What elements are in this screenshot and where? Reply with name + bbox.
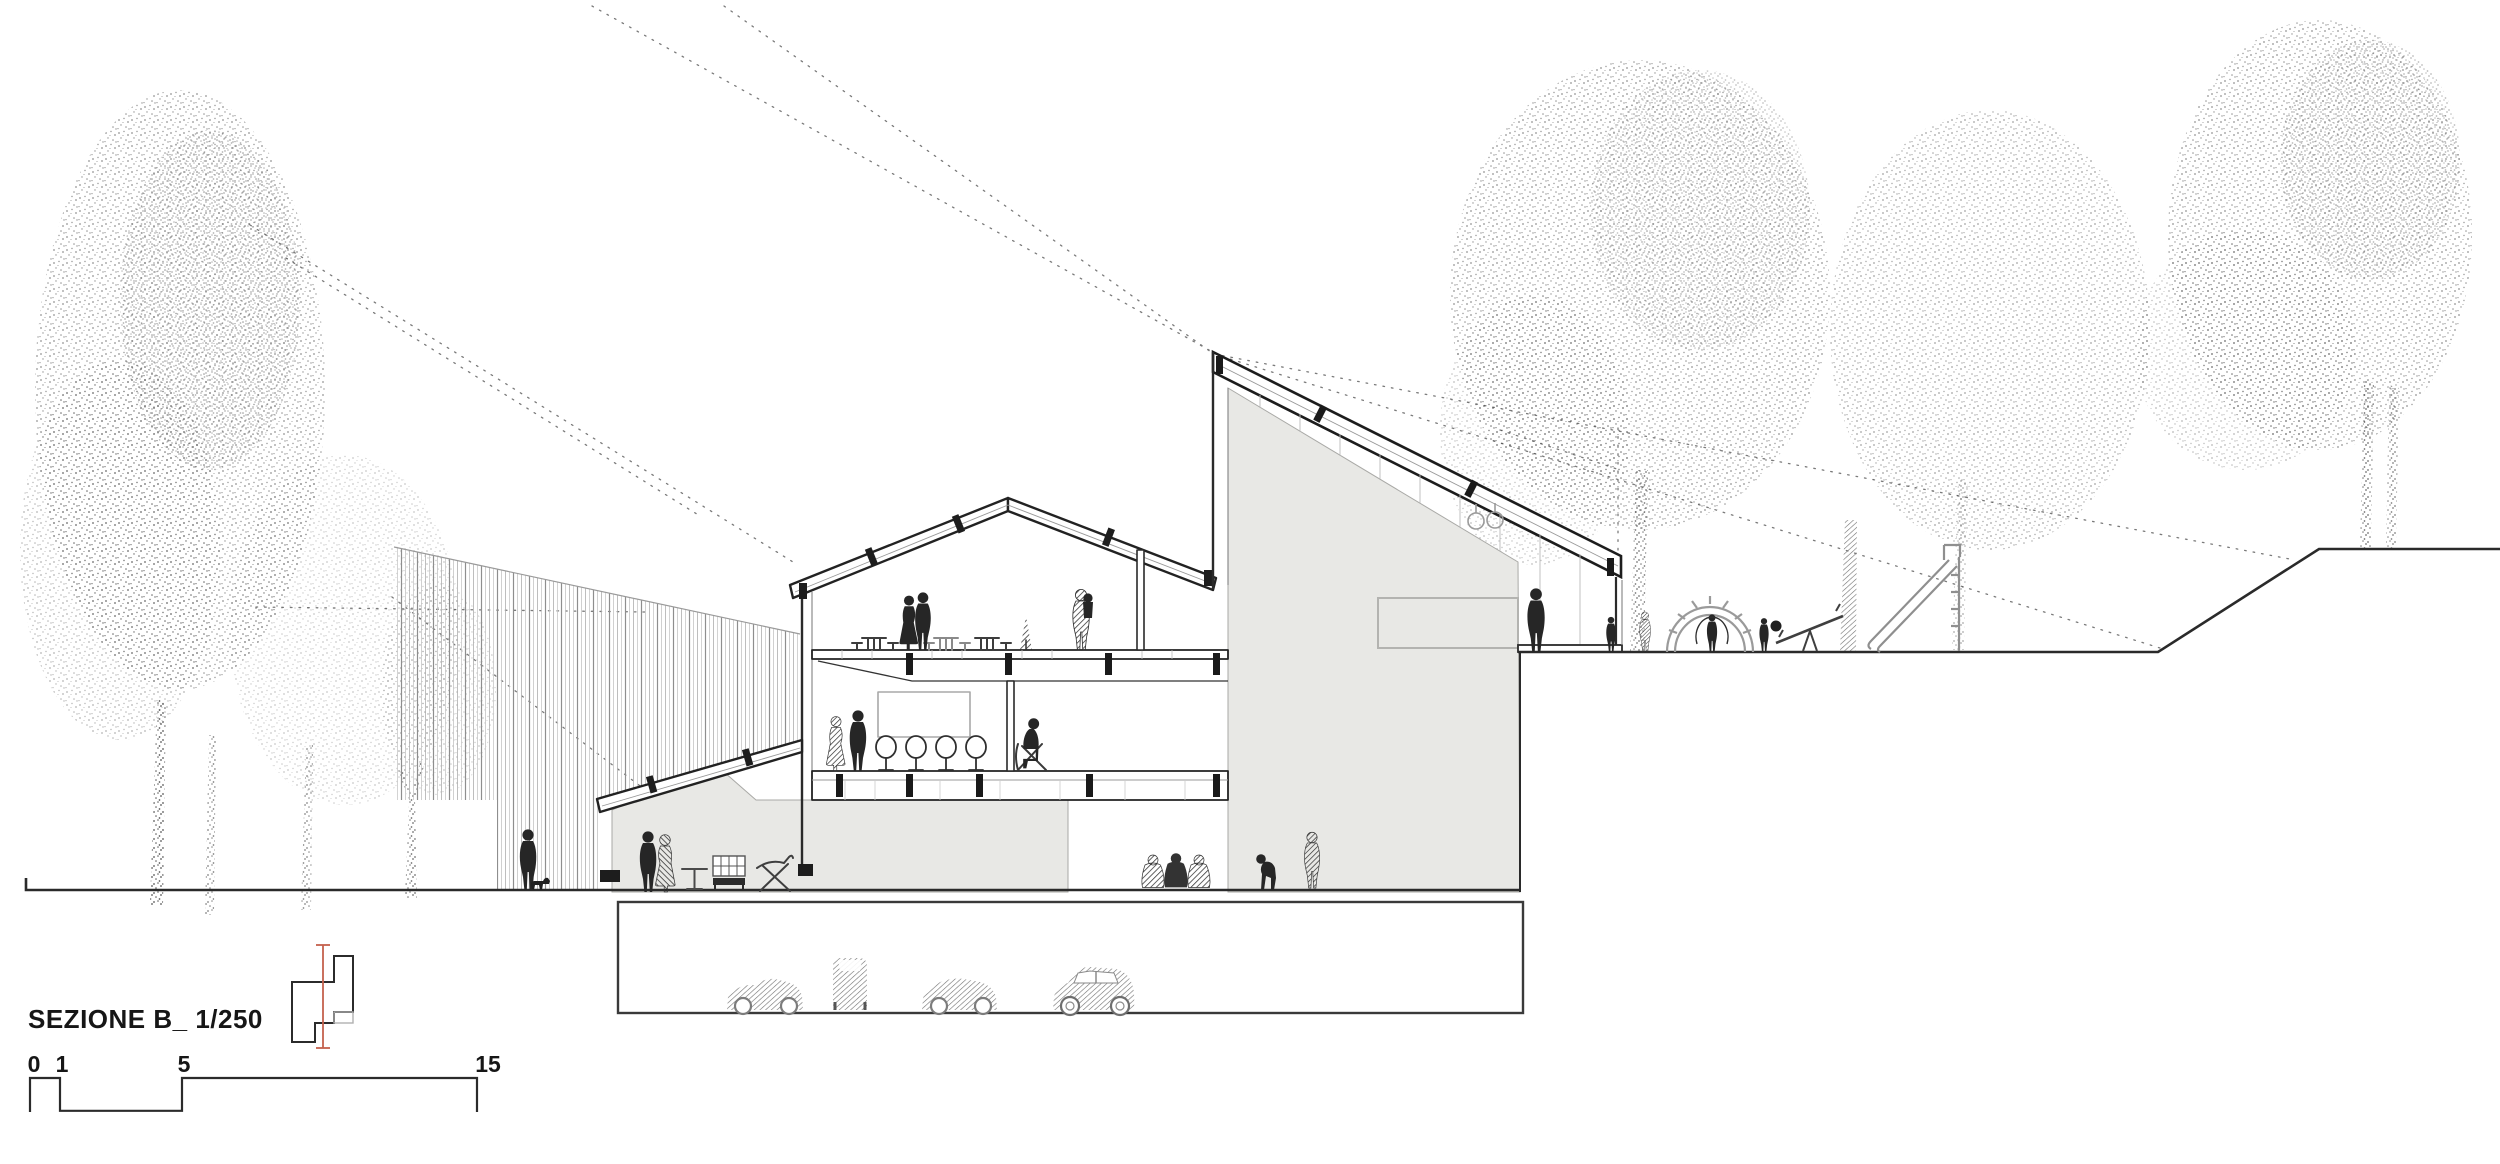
cafe-set — [975, 638, 1011, 650]
section-drawing: SEZIONE B_ 1/250 0 1 5 15 — [0, 0, 2500, 1164]
scale-label-5: 5 — [178, 1051, 191, 1077]
person-seated — [1023, 718, 1039, 768]
swivel-chairs — [876, 736, 986, 770]
child-jumping-rope — [1696, 614, 1728, 652]
scale-label-0: 0 — [28, 1051, 41, 1077]
slide — [1869, 545, 1961, 652]
person-seated — [1164, 853, 1187, 887]
upper-floor-slab — [812, 650, 1228, 681]
section-line-marker — [316, 945, 330, 1048]
cafe-set — [924, 638, 970, 650]
tree-canopy — [1830, 110, 2150, 550]
tree-trunk — [150, 700, 166, 905]
person-carrying-child — [1073, 589, 1093, 650]
potted-plant — [1020, 616, 1032, 650]
drawing-title: SEZIONE B_ 1/250 — [28, 1004, 263, 1034]
seesaw — [1776, 604, 1843, 651]
tree-trunk — [205, 735, 216, 915]
person — [899, 596, 918, 650]
scale-label-15: 15 — [475, 1051, 501, 1077]
mid-partition-wall — [1007, 681, 1014, 771]
terrace-shelf-unit — [713, 856, 745, 890]
child-with-ball — [1759, 618, 1781, 652]
titleblock: SEZIONE B_ 1/250 0 1 5 15 — [28, 945, 501, 1112]
key-plan — [292, 945, 353, 1048]
gable-roof-left-slope — [790, 498, 1008, 598]
underground-parking — [618, 902, 1523, 1015]
gable-roof-right-slope — [1008, 498, 1216, 590]
upper-partition-wall — [1137, 550, 1144, 650]
ground-line-playground — [1518, 549, 2500, 652]
section-drawing-sheet: SEZIONE B_ 1/250 0 1 5 15 — [0, 0, 2500, 1164]
lower-floor-slab — [812, 771, 1228, 800]
tree-trunk — [1840, 520, 1857, 652]
scale-bar: 0 1 5 15 — [28, 1051, 501, 1112]
cafe-set — [852, 638, 898, 650]
person — [1527, 588, 1544, 652]
scale-label-1: 1 — [56, 1051, 69, 1077]
person-seated — [1188, 855, 1210, 888]
car-front-view — [833, 958, 867, 1010]
person-seated — [1142, 855, 1164, 888]
person — [850, 710, 866, 771]
person — [826, 717, 845, 771]
whiteboard — [878, 692, 970, 737]
